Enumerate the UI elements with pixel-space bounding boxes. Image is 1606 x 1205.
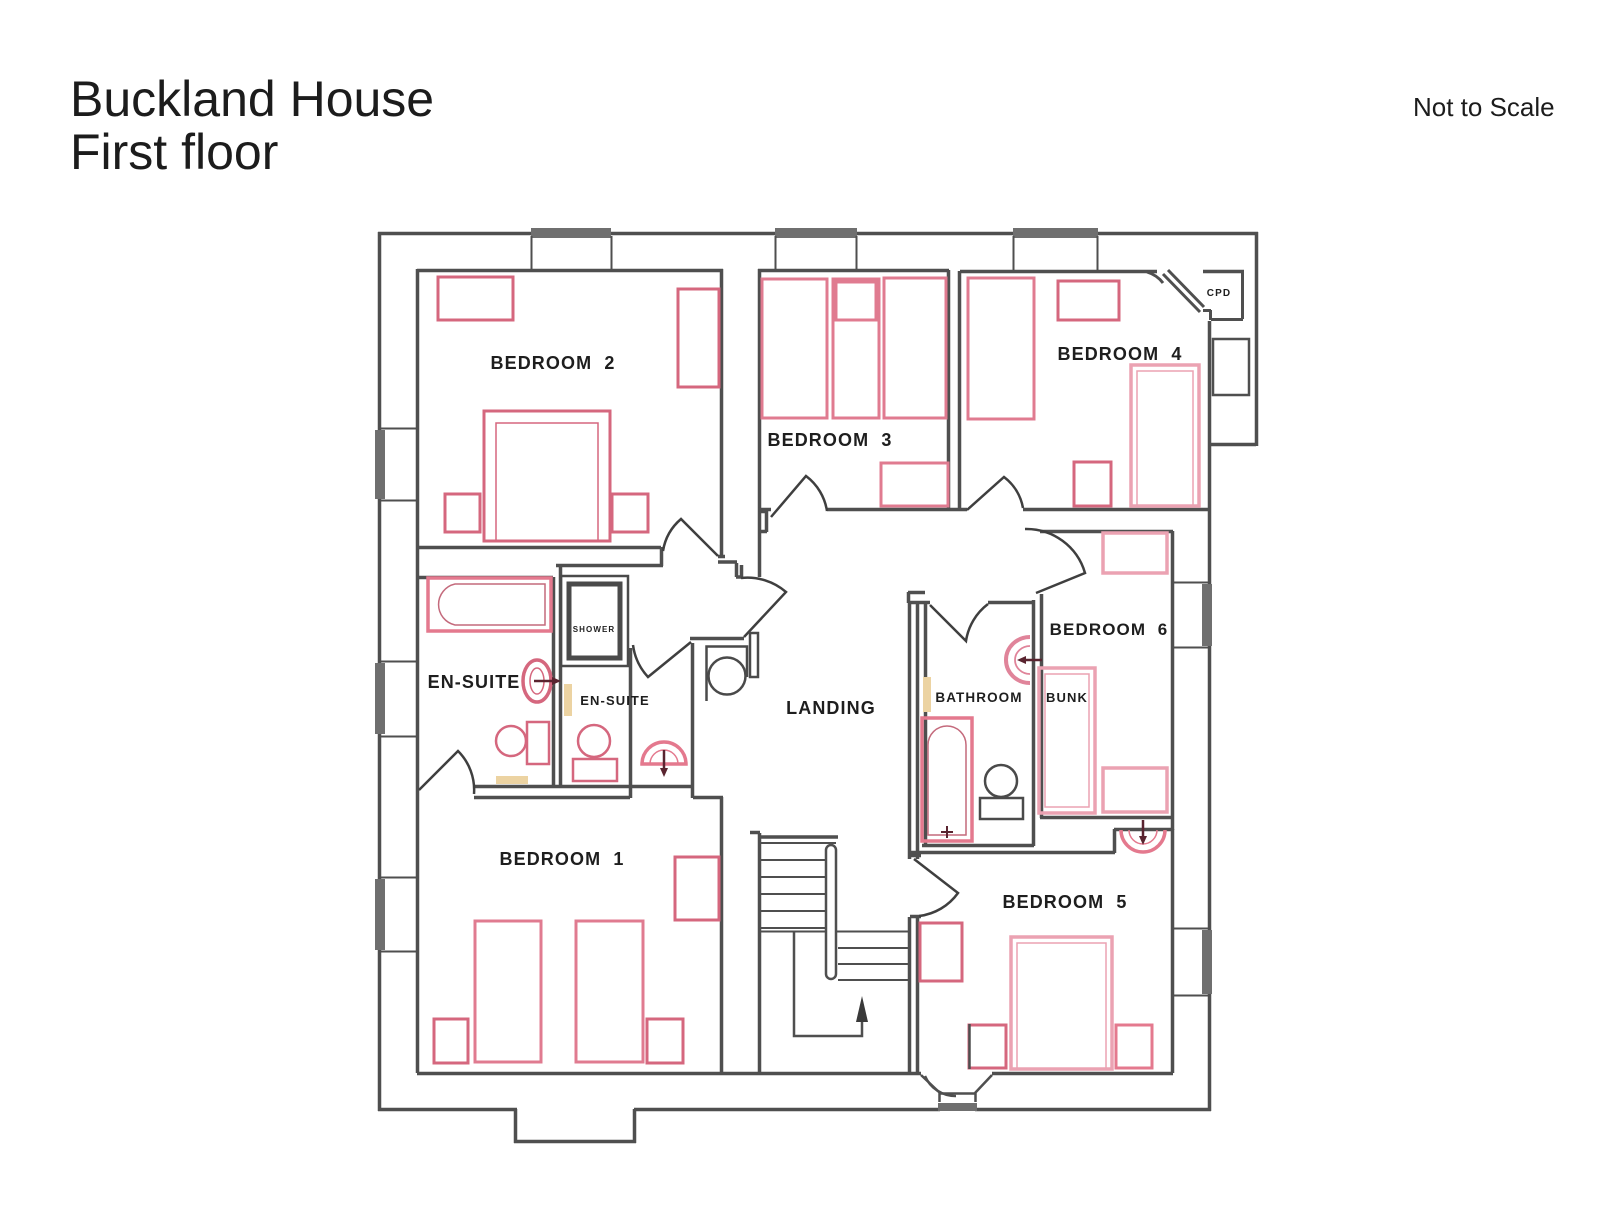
- svg-text:CPD: CPD: [1207, 288, 1231, 299]
- svg-text:BUNK: BUNK: [1046, 690, 1088, 705]
- svg-text:BEDROOM 5: BEDROOM 5: [1002, 892, 1127, 912]
- svg-text:EN-SUITE: EN-SUITE: [580, 693, 649, 708]
- svg-text:Not to Scale: Not to Scale: [1413, 92, 1555, 122]
- svg-text:LANDING: LANDING: [786, 698, 876, 718]
- svg-text:Buckland House: Buckland House: [70, 71, 434, 127]
- svg-text:BEDROOM 3: BEDROOM 3: [767, 430, 892, 450]
- svg-text:SHOWER: SHOWER: [573, 625, 616, 634]
- svg-text:BATHROOM: BATHROOM: [935, 690, 1022, 705]
- svg-text:First floor: First floor: [70, 124, 278, 180]
- svg-text:EN-SUITE: EN-SUITE: [428, 672, 521, 692]
- svg-text:BEDROOM 2: BEDROOM 2: [490, 353, 615, 373]
- svg-text:BEDROOM 6: BEDROOM 6: [1050, 620, 1169, 639]
- svg-text:BEDROOM 1: BEDROOM 1: [499, 849, 624, 869]
- svg-text:BEDROOM 4: BEDROOM 4: [1057, 344, 1182, 364]
